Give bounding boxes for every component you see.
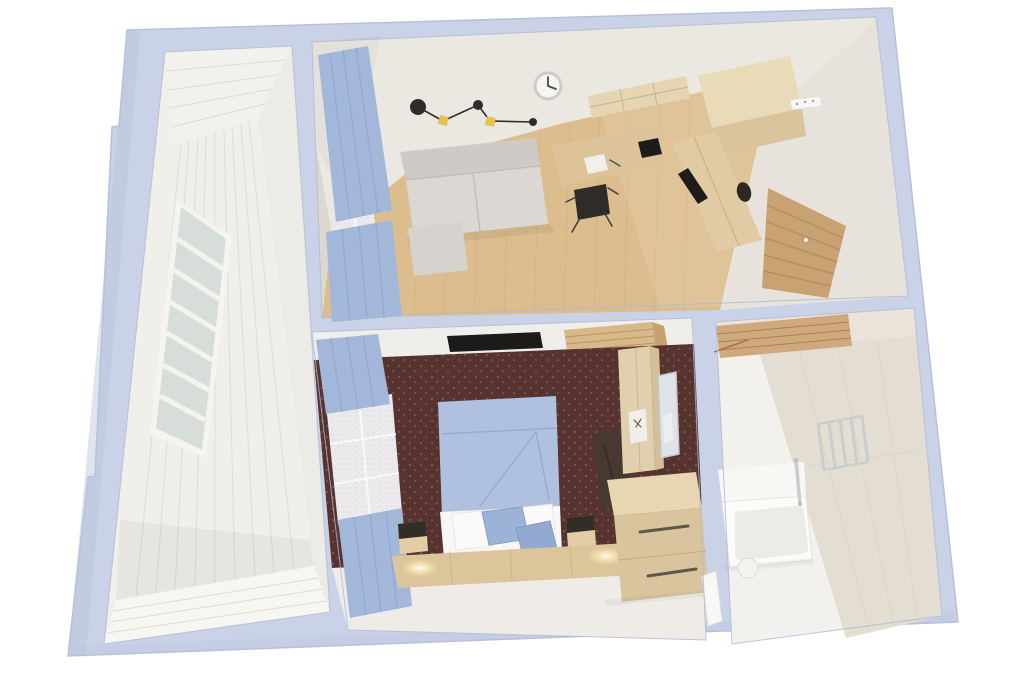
platform-light-left bbox=[401, 559, 439, 577]
apartment-floorplan-3d-render bbox=[0, 0, 1024, 688]
dresser-front bbox=[614, 508, 708, 602]
living-curtain-bottom bbox=[326, 220, 402, 322]
bedroom-mirror-reflection bbox=[663, 413, 673, 443]
nightstand-left-top bbox=[398, 521, 427, 539]
floorplan-render-stage bbox=[0, 0, 1024, 688]
wall-lamp-yellow-shade-1 bbox=[438, 115, 449, 126]
bathtub-basin bbox=[735, 506, 808, 560]
wall-lamp-disc-mid bbox=[473, 100, 483, 110]
room-bedroom bbox=[312, 318, 722, 640]
bedroom-hook-panel bbox=[628, 408, 648, 444]
room-living-kitchen-hall bbox=[312, 17, 908, 322]
grab-bar-mount-top bbox=[794, 458, 798, 462]
nightstand-right-top bbox=[566, 515, 595, 533]
entrance-door-handle bbox=[804, 238, 809, 243]
bed-duvet bbox=[438, 396, 560, 518]
sofa-ottoman bbox=[408, 222, 468, 276]
bath-stool bbox=[738, 558, 758, 578]
wall-lamp-disc-small bbox=[529, 118, 537, 126]
room-bathroom bbox=[714, 308, 942, 644]
desk-chair-seat bbox=[574, 184, 610, 220]
wall-lamp-yellow-shade-2 bbox=[485, 116, 496, 127]
grab-bar-mount-bottom bbox=[798, 502, 802, 506]
wall-lamp-disc-large bbox=[410, 99, 426, 115]
